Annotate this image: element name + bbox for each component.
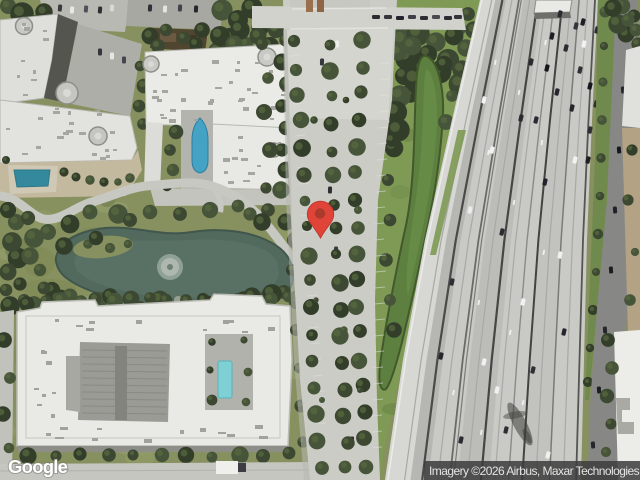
svg-text:Imagery ©2026 Airbus, Maxar Te: Imagery ©2026 Airbus, Maxar Technologies bbox=[429, 464, 640, 478]
svg-text:Google: Google bbox=[8, 456, 68, 477]
